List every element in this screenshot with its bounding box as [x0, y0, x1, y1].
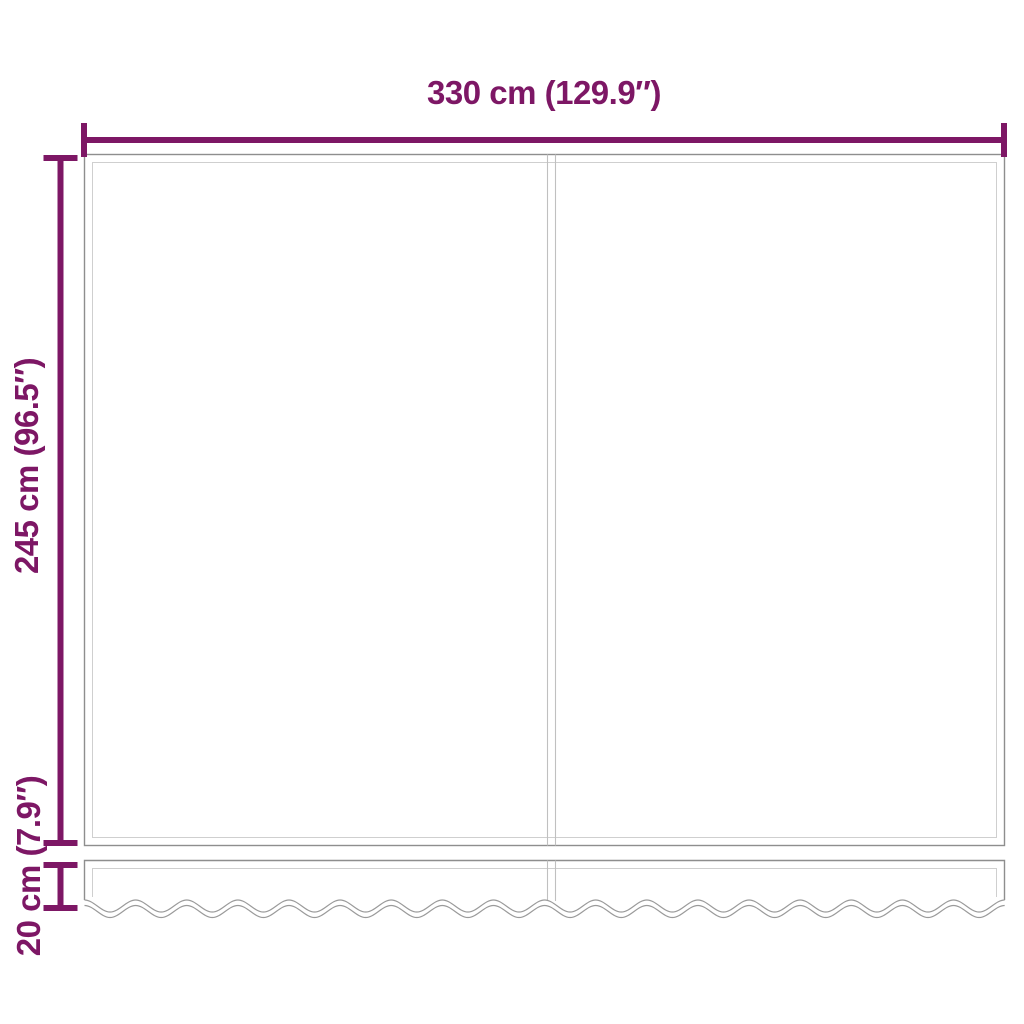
fabric-panel — [85, 155, 1005, 846]
width-dimension: 330 cm (129.9″) — [84, 74, 1004, 157]
width-dimension-label: 330 cm (129.9″) — [427, 74, 661, 111]
fabric-inner-border — [93, 163, 997, 838]
height-dimension: 245 cm (96.5″) — [8, 158, 78, 843]
valance-panel — [85, 861, 1005, 918]
valance-inner-border — [93, 869, 997, 898]
valance-dimension-label: 20 cm (7.9″) — [10, 776, 47, 956]
height-dimension-label: 245 cm (96.5″) — [8, 358, 45, 574]
valance-height-dimension: 20 cm (7.9″) — [10, 776, 78, 956]
fabric-outer-border — [85, 155, 1005, 846]
valance-outer-border — [85, 861, 1005, 901]
product-dimension-diagram: 330 cm (129.9″) 245 cm (96.5″) 20 cm (7.… — [0, 0, 1024, 1024]
awning-fabric-diagram: 330 cm (129.9″) 245 cm (96.5″) 20 cm (7.… — [0, 0, 1024, 1024]
